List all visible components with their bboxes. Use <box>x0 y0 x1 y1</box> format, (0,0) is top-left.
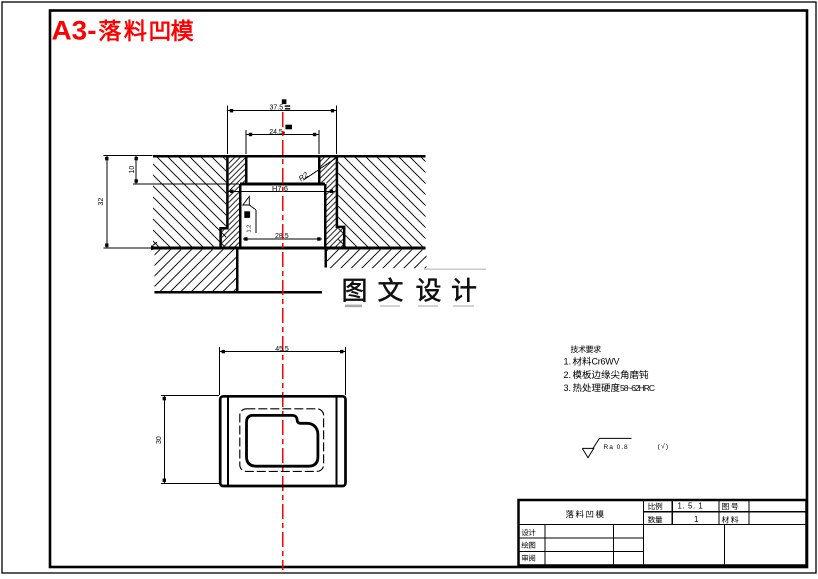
svg-text:3.: 3. <box>564 383 572 393</box>
svg-text:2.: 2. <box>564 370 572 380</box>
svg-text:1: 1 <box>694 515 698 524</box>
svg-text:H7-6: H7-6 <box>272 184 288 193</box>
svg-text:10: 10 <box>129 166 136 174</box>
svg-text:37.5: 37.5 <box>270 105 284 112</box>
svg-text:1.2: 1.2 <box>247 225 253 233</box>
svg-text:Cr6WV: Cr6WV <box>592 357 620 367</box>
svg-text:58~62HRC: 58~62HRC <box>620 383 655 393</box>
svg-text:24.5: 24.5 <box>269 129 283 136</box>
svg-text:(√): (√) <box>658 442 670 450</box>
svg-text:32: 32 <box>98 198 105 206</box>
svg-text:30: 30 <box>156 436 163 444</box>
svg-text:1. 5. 1: 1. 5. 1 <box>678 501 704 510</box>
svg-text:45.5: 45.5 <box>275 346 289 353</box>
svg-text:Ra 0.8: Ra 0.8 <box>604 444 629 451</box>
svg-text:A3-: A3- <box>52 16 97 46</box>
svg-text:1.: 1. <box>564 357 572 367</box>
